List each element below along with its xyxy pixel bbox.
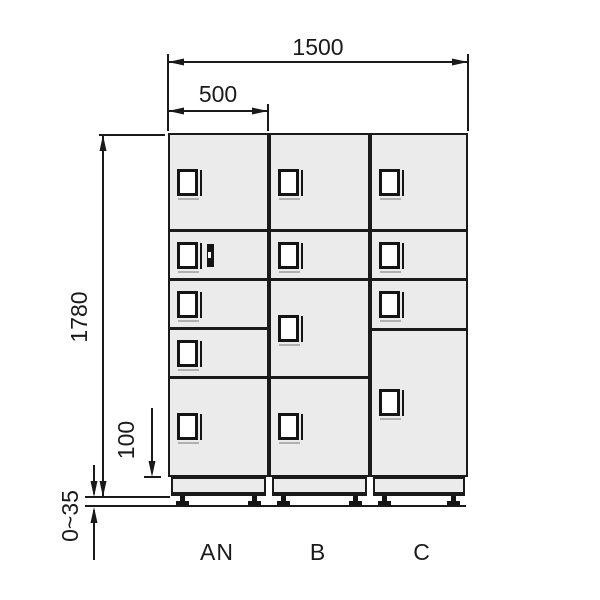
door-handle-icon (177, 242, 198, 269)
door-handle-icon (278, 169, 299, 196)
leveling-foot-base (277, 501, 290, 505)
dim-total-height-label: 1780 (66, 291, 92, 342)
leveling-foot-base (176, 501, 189, 505)
locker-door (170, 281, 267, 330)
column-label-c: C (392, 540, 452, 564)
locker-door (170, 330, 267, 379)
arrow-down-icon (91, 481, 98, 497)
door-handle-icon (379, 291, 400, 318)
leveling-foot-base (248, 501, 261, 505)
locker-column-c (370, 133, 468, 477)
arrow-left-icon (168, 59, 184, 66)
arrow-up-icon (91, 507, 98, 523)
arrow-down-icon (100, 481, 107, 497)
lock-unit-icon (207, 244, 214, 267)
dim-column-width-label: 500 (199, 81, 237, 107)
leveling-foot-base (349, 501, 362, 505)
dim-adjuster-range-label: 0~35 (57, 490, 83, 542)
door-handle-icon (278, 242, 299, 269)
door-handle-icon (177, 413, 198, 440)
locker-door (271, 135, 368, 232)
locker-door (372, 281, 466, 331)
plinth-base (171, 477, 266, 496)
plinth-base (272, 477, 367, 496)
column-label-b: B (288, 540, 348, 564)
arrow-up-icon (100, 135, 107, 151)
leveling-foot-base (447, 501, 460, 505)
dim-total-width-label: 1500 (292, 34, 343, 60)
locker-column-b (269, 133, 370, 477)
locker-door (170, 379, 267, 474)
locker-door (170, 232, 267, 281)
door-handle-icon (379, 242, 400, 269)
locker-door (170, 135, 267, 232)
locker-door (372, 232, 466, 281)
locker-diagram: 1500 500 1780 100 0~35 AN B C (0, 0, 600, 600)
arrow-right-icon (252, 108, 268, 115)
arrow-left-icon (168, 108, 184, 115)
locker-column-an (168, 133, 269, 477)
door-handle-icon (177, 169, 198, 196)
locker-door (372, 331, 466, 474)
door-handle-icon (278, 315, 299, 342)
dim-plinth-height-label: 100 (113, 421, 139, 459)
arrow-down-icon (149, 461, 156, 477)
arrow-right-icon (452, 59, 468, 66)
plinth-base (373, 477, 465, 496)
door-handle-icon (379, 389, 400, 416)
leveling-foot-base (378, 501, 391, 505)
locker-door (271, 281, 368, 379)
locker-door (372, 135, 466, 232)
door-handle-icon (177, 340, 198, 367)
door-handle-icon (379, 169, 400, 196)
door-handle-icon (278, 413, 299, 440)
door-handle-icon (177, 291, 198, 318)
locker-door (271, 379, 368, 474)
column-label-an: AN (187, 540, 247, 564)
locker-door (271, 232, 368, 281)
